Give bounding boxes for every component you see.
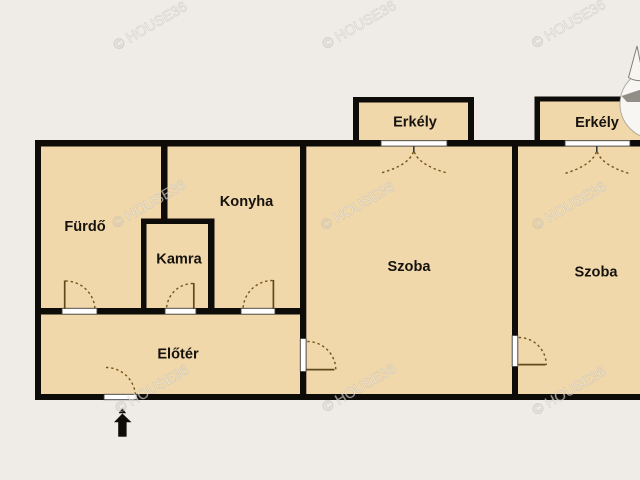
svg-text:Kamra: Kamra (156, 252, 202, 268)
svg-text:Szoba: Szoba (388, 259, 432, 275)
svg-text:Fürdő: Fürdő (64, 219, 105, 235)
svg-text:Erkély: Erkély (393, 115, 438, 131)
svg-text:Konyha: Konyha (220, 194, 274, 210)
svg-text:Előtér: Előtér (157, 347, 199, 363)
svg-text:Szoba: Szoba (575, 265, 619, 281)
svg-text:Erkély: Erkély (575, 115, 620, 131)
